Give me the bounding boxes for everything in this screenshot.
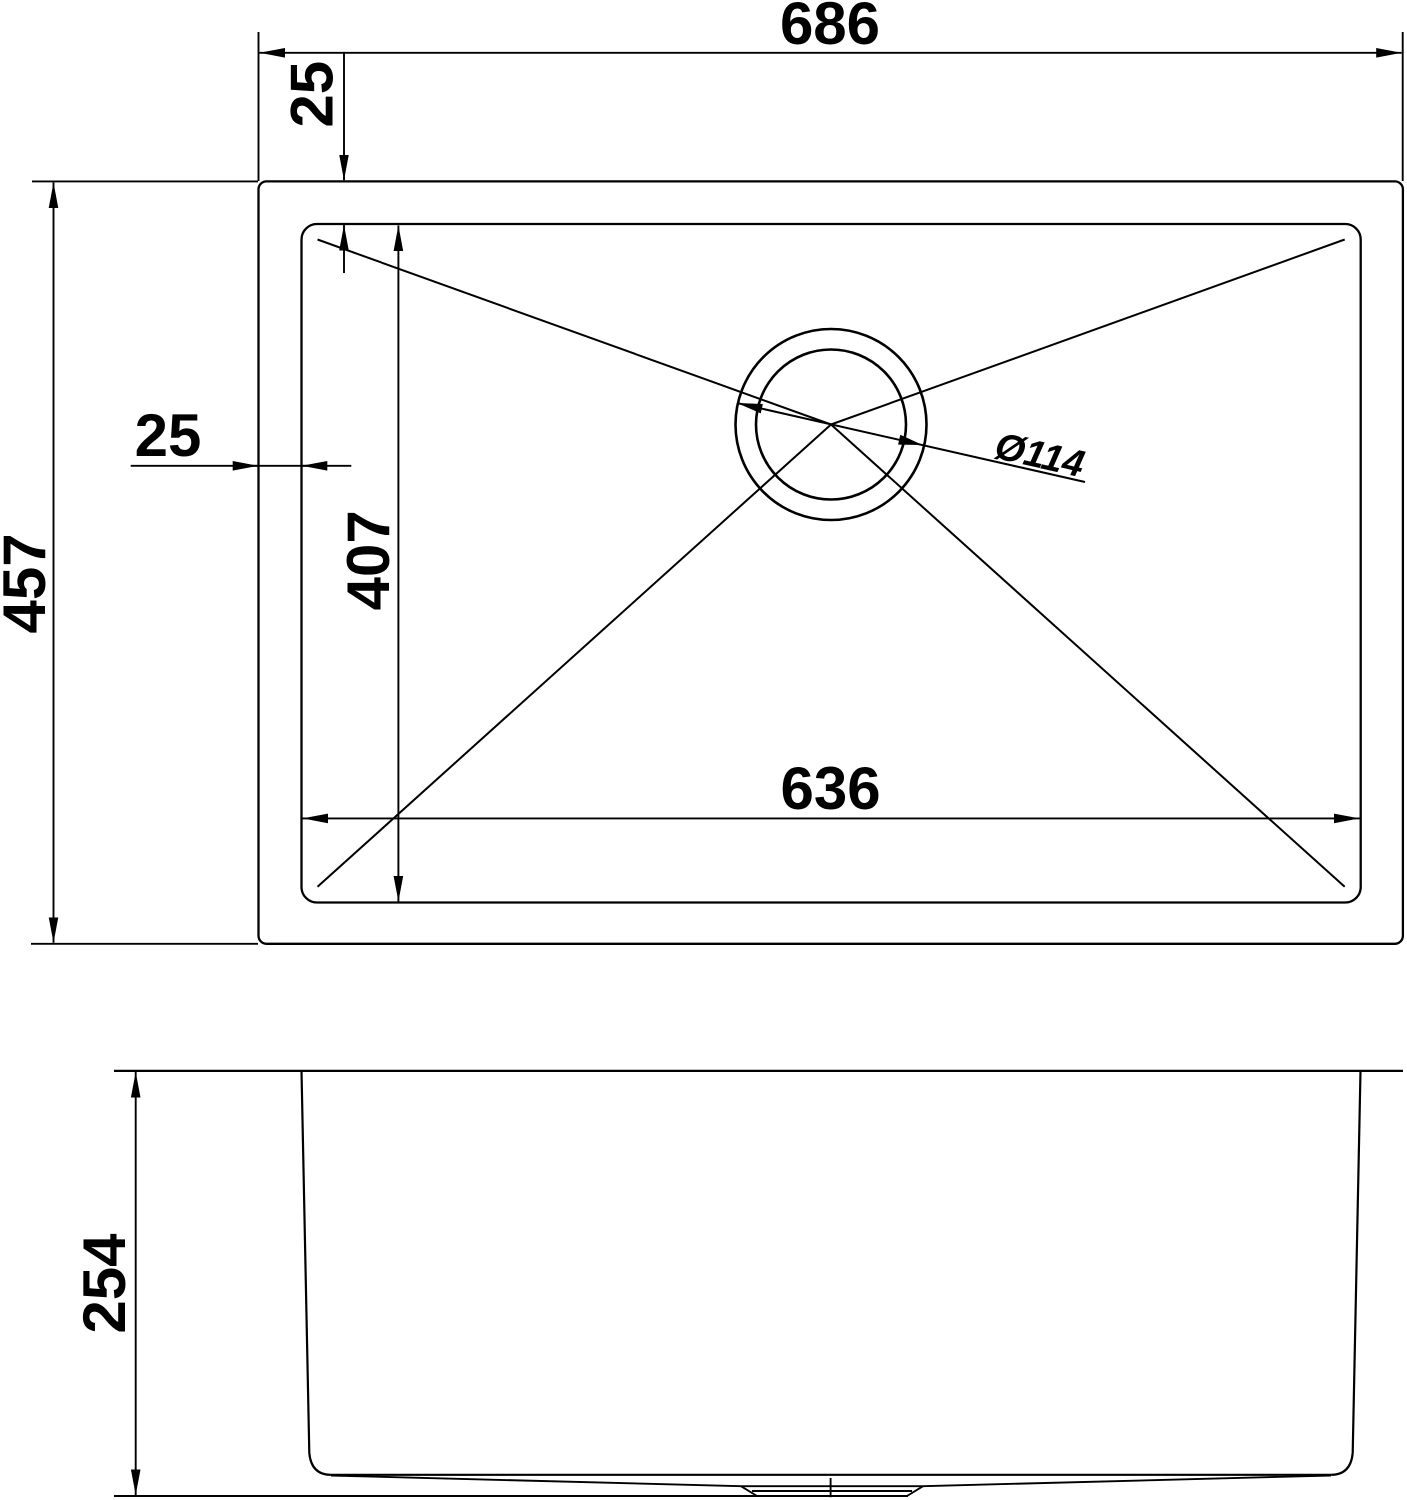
svg-text:457: 457 bbox=[0, 533, 58, 633]
svg-text:686: 686 bbox=[780, 0, 880, 57]
svg-text:25: 25 bbox=[279, 61, 346, 128]
svg-text:636: 636 bbox=[781, 755, 881, 822]
svg-text:Ø114: Ø114 bbox=[991, 425, 1088, 486]
svg-text:25: 25 bbox=[135, 402, 202, 469]
svg-text:407: 407 bbox=[335, 510, 402, 610]
svg-text:254: 254 bbox=[71, 1233, 138, 1334]
